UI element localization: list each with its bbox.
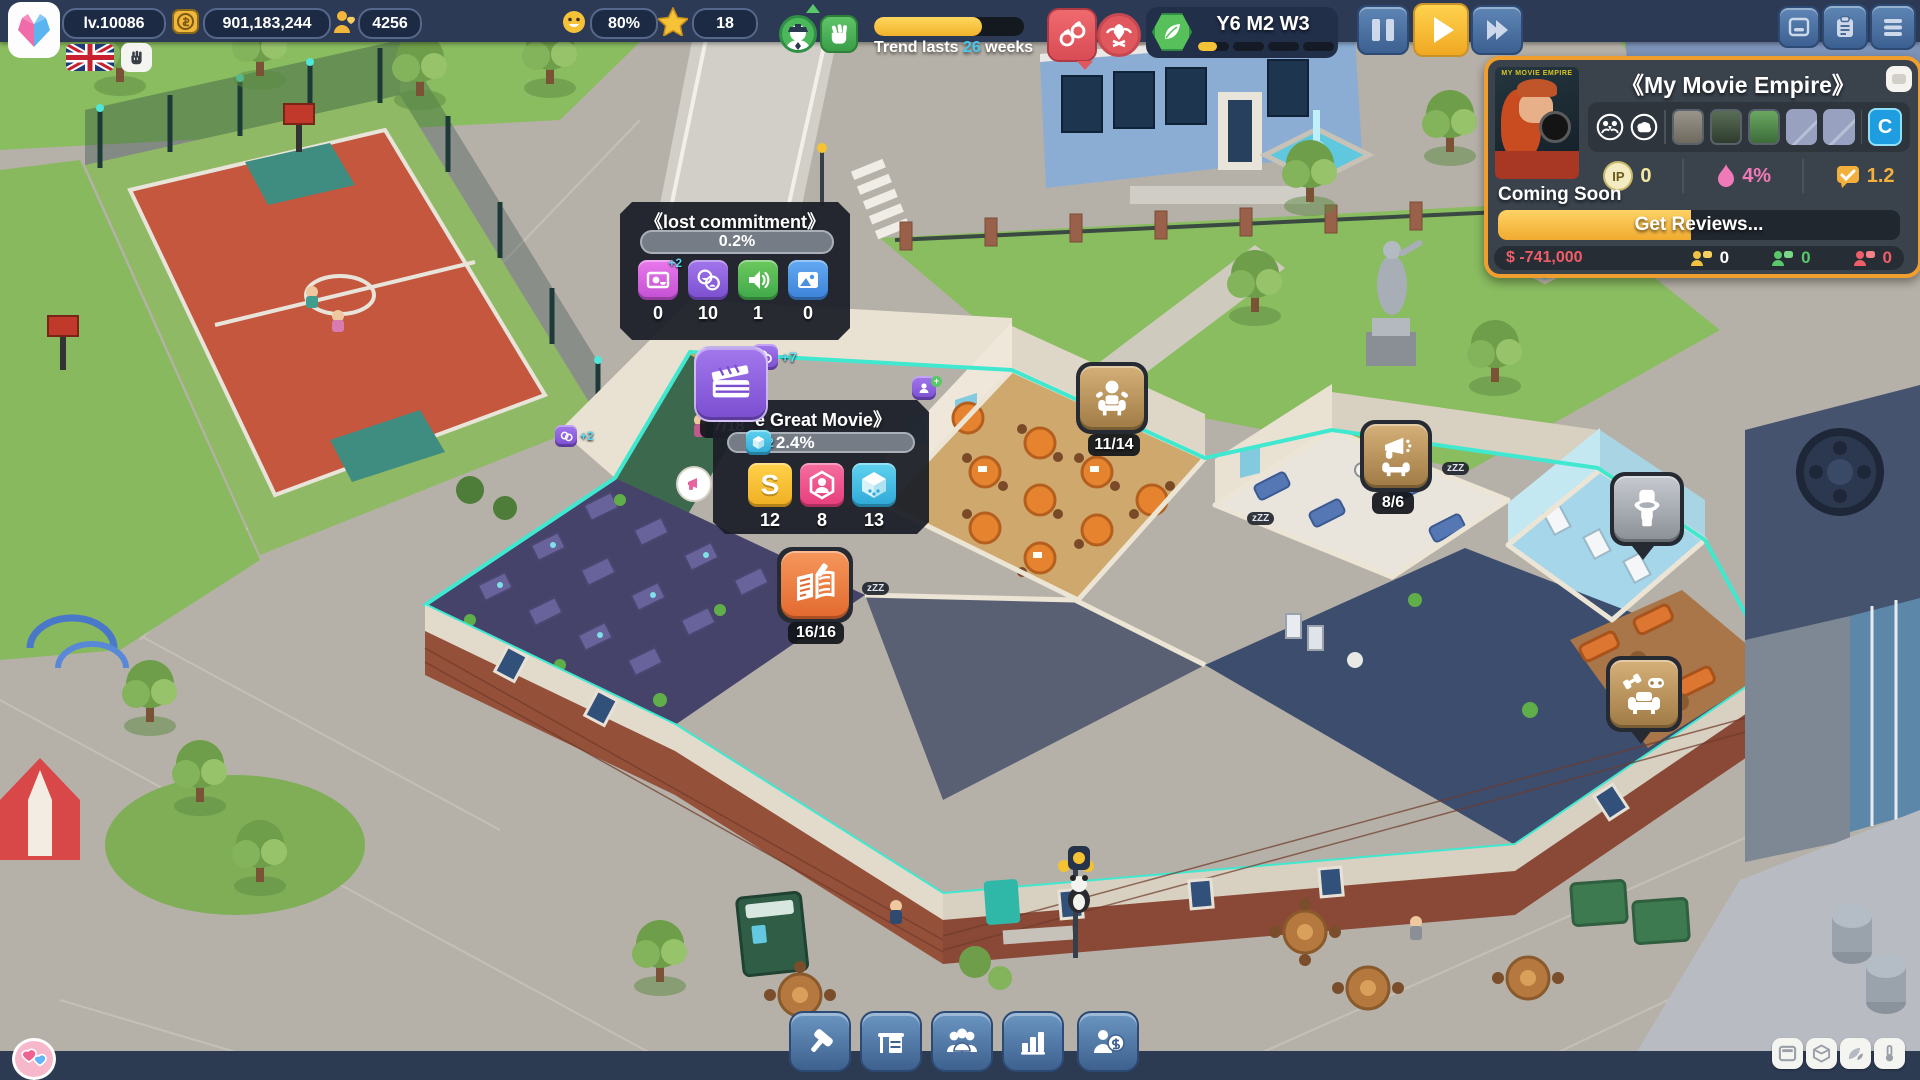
stat-value: 12 [748,510,792,531]
thermometer-icon [1880,1044,1899,1063]
trend-up-arrow [806,4,820,13]
play-button[interactable] [1413,3,1469,57]
room-pin-lounge[interactable] [1606,656,1682,732]
rating-value: 1.2 [1867,165,1895,188]
room-pin-toilet[interactable] [1610,472,1684,546]
continue-button[interactable]: C [1868,108,1902,146]
megaphone-bubble [676,466,712,502]
movie-poster[interactable]: MY MOVIE EMPIRE [1495,67,1579,179]
stats-button[interactable] [1002,1011,1064,1072]
audience-green-value: 0 [1801,248,1810,268]
megaphone-couch-icon [1374,434,1418,478]
pin-tip [1630,730,1652,744]
buff-person-icon: + [912,376,942,400]
menu-icon [1881,15,1905,39]
room-count-script: 16/16 [788,622,844,644]
fast-forward-button[interactable] [1471,5,1523,55]
season-leaf-icon [1152,12,1192,52]
bonus-badge: +2 [668,256,682,270]
toilet-icon [1624,486,1670,532]
clapperboard-icon[interactable] [694,346,768,422]
progress-value: 0.2% [719,233,755,251]
staff-button[interactable] [931,1011,993,1072]
person-money-icon [1091,1026,1125,1058]
fist-icon [128,49,145,66]
rating-stat: 1.2 [1835,163,1895,189]
cards-button[interactable] [1778,6,1820,48]
social-hearts-button[interactable] [12,1038,56,1080]
studio-mini-icon [746,430,771,455]
studio-icon [852,463,896,507]
audience-red-icon [1853,249,1875,267]
app-logo[interactable] [8,2,60,58]
heat-value: 4% [1742,165,1771,188]
flame-icon [1715,163,1737,189]
language-flag[interactable] [66,44,114,71]
scene-slot-empty[interactable] [1786,109,1817,145]
lost-commitment-progress: 0.2% [640,230,834,254]
cube-icon [1812,1044,1831,1063]
build-button[interactable] [789,1011,851,1072]
happiness-icon [562,10,586,34]
fans-icon [332,9,356,35]
drama-masks-icon [688,260,728,300]
divider [1861,110,1863,144]
buff-star-icon: +2 [555,425,594,447]
tooltip-title: e Great Movie》 [755,406,891,432]
objects-button[interactable] [1806,1038,1837,1069]
divider [1664,110,1666,144]
play-icon [1434,17,1454,43]
trend-progress [874,17,1024,36]
strike-button[interactable] [820,15,858,53]
screen-masks-icon: +2 [638,260,678,300]
scene-thumb-3[interactable] [1748,109,1780,145]
sleep-bubble: zZZ [1247,512,1274,525]
divider [1682,159,1684,193]
environment-button[interactable] [1840,1038,1871,1069]
ui-toggle-button[interactable] [1772,1038,1803,1069]
divider [1802,159,1804,193]
happiness-display: 80% [590,8,658,39]
room-count-marketing: 8/6 [1372,492,1414,514]
clipboard-icon [1833,15,1857,39]
pause-icon [1372,19,1380,41]
blue-heart-icon [34,1055,46,1066]
book-pencil-icon [791,561,839,609]
room-pin-writers[interactable] [1076,362,1148,434]
heat-stat: 4% [1715,163,1771,189]
movie-status: Coming Soon [1498,184,1621,206]
cinema-building [1745,385,1920,862]
pin-tip [1632,546,1654,560]
stat-value: 8 [800,510,844,531]
money-display: 901,183,244 [203,8,331,39]
star-icon [658,7,688,36]
menu-button[interactable] [1870,4,1916,50]
game-screen: zZZ zZZ zZZ +2 + 《lost commitment》 0.2% … [0,0,1920,1080]
picture-icon [788,260,828,300]
chart-icon [1017,1026,1049,1058]
get-reviews-label: Get Reviews... [1498,210,1900,240]
review-check-icon [1835,163,1861,189]
movie-bottom-bar: $ -741,000 0 0 0 [1494,246,1904,270]
finance-button[interactable] [1077,1011,1139,1072]
scene-thumb-2[interactable] [1710,109,1742,145]
fans-display: 4256 [358,8,422,39]
person-couch-icon [1090,376,1134,420]
collapse-icon [1892,74,1906,84]
audience-yellow-icon [1690,249,1712,267]
handcuffs-icon [1057,20,1087,50]
audience-red-value: 0 [1883,248,1892,268]
collapse-button[interactable] [1886,66,1912,92]
police-avatar[interactable] [779,15,817,53]
tasks-button[interactable] [1822,4,1868,50]
coin-icon [172,9,199,34]
hammer-icon [804,1026,836,1058]
mascot [1068,846,1090,913]
genre-icon-drama[interactable] [1630,111,1658,143]
stat-value: 10 [688,303,728,324]
lounge-icon [1620,670,1668,718]
sleep-bubble: zZZ [862,582,889,595]
trend-label: Trend lasts 26 weeks [874,39,1033,57]
stat-value: 0 [788,303,828,324]
furniture-icon [875,1026,907,1058]
movie-stats-row: IP 0 4% 1.2 [1588,156,1910,196]
stat-value: 13 [852,510,896,531]
trend-down-arrow [1077,61,1093,70]
scene-thumb-1[interactable] [1672,109,1704,145]
pause-button[interactable] [1357,5,1409,55]
budget-value: $ -741,000 [1506,249,1583,267]
date-widget: Y6 M2 W3 [1146,7,1338,58]
movie-title: 《My Movie Empire》 [1588,66,1888,100]
cards-icon [1788,16,1810,38]
trend-weeks: 26 [963,39,981,56]
window-icon [1778,1044,1797,1063]
movie-panel: MY MOVIE EMPIRE 《My Movie Empire》 C IP 0… [1484,56,1920,278]
level-display: lv.10086 [62,8,166,39]
flop-button[interactable] [1097,13,1141,57]
audience-green-icon [1771,249,1793,267]
scene-slot-empty[interactable] [1823,109,1854,145]
ip-value: 0 [1640,165,1651,188]
speaker-icon [738,260,778,300]
script-s-icon: S [748,463,792,507]
heart-gem-icon [14,10,54,50]
genre-icon-party[interactable] [1596,111,1624,143]
room-count-writers: 11/14 [1088,434,1140,456]
progress-value: 2.4% [776,433,815,453]
actor-icon [800,463,844,507]
flop-bird-icon [1105,21,1133,49]
room-pin-script[interactable] [777,547,853,623]
fist-icon [827,22,851,46]
temperature-button[interactable] [1874,1038,1905,1069]
game-date: Y6 M2 W3 [1194,13,1332,36]
sleep-bubble: zZZ [1442,462,1469,475]
megaphone-icon [685,475,703,493]
room-pin-marketing[interactable] [1360,420,1432,492]
staff-icon [945,1026,979,1058]
stars-display: 18 [692,8,758,39]
get-reviews-progress[interactable]: Get Reviews... [1498,210,1900,240]
stat-value: 0 [638,303,678,324]
audience-yellow-value: 0 [1720,248,1729,268]
leaves-icon [1846,1044,1865,1063]
scandal-button[interactable] [1047,8,1097,62]
protest-button[interactable] [121,43,152,72]
trend-fill [874,17,982,36]
poster-title: MY MOVIE EMPIRE [1495,70,1579,77]
movie-slots-strip: C [1588,102,1910,152]
furniture-button[interactable] [860,1011,922,1072]
stat-value: 1 [738,303,778,324]
